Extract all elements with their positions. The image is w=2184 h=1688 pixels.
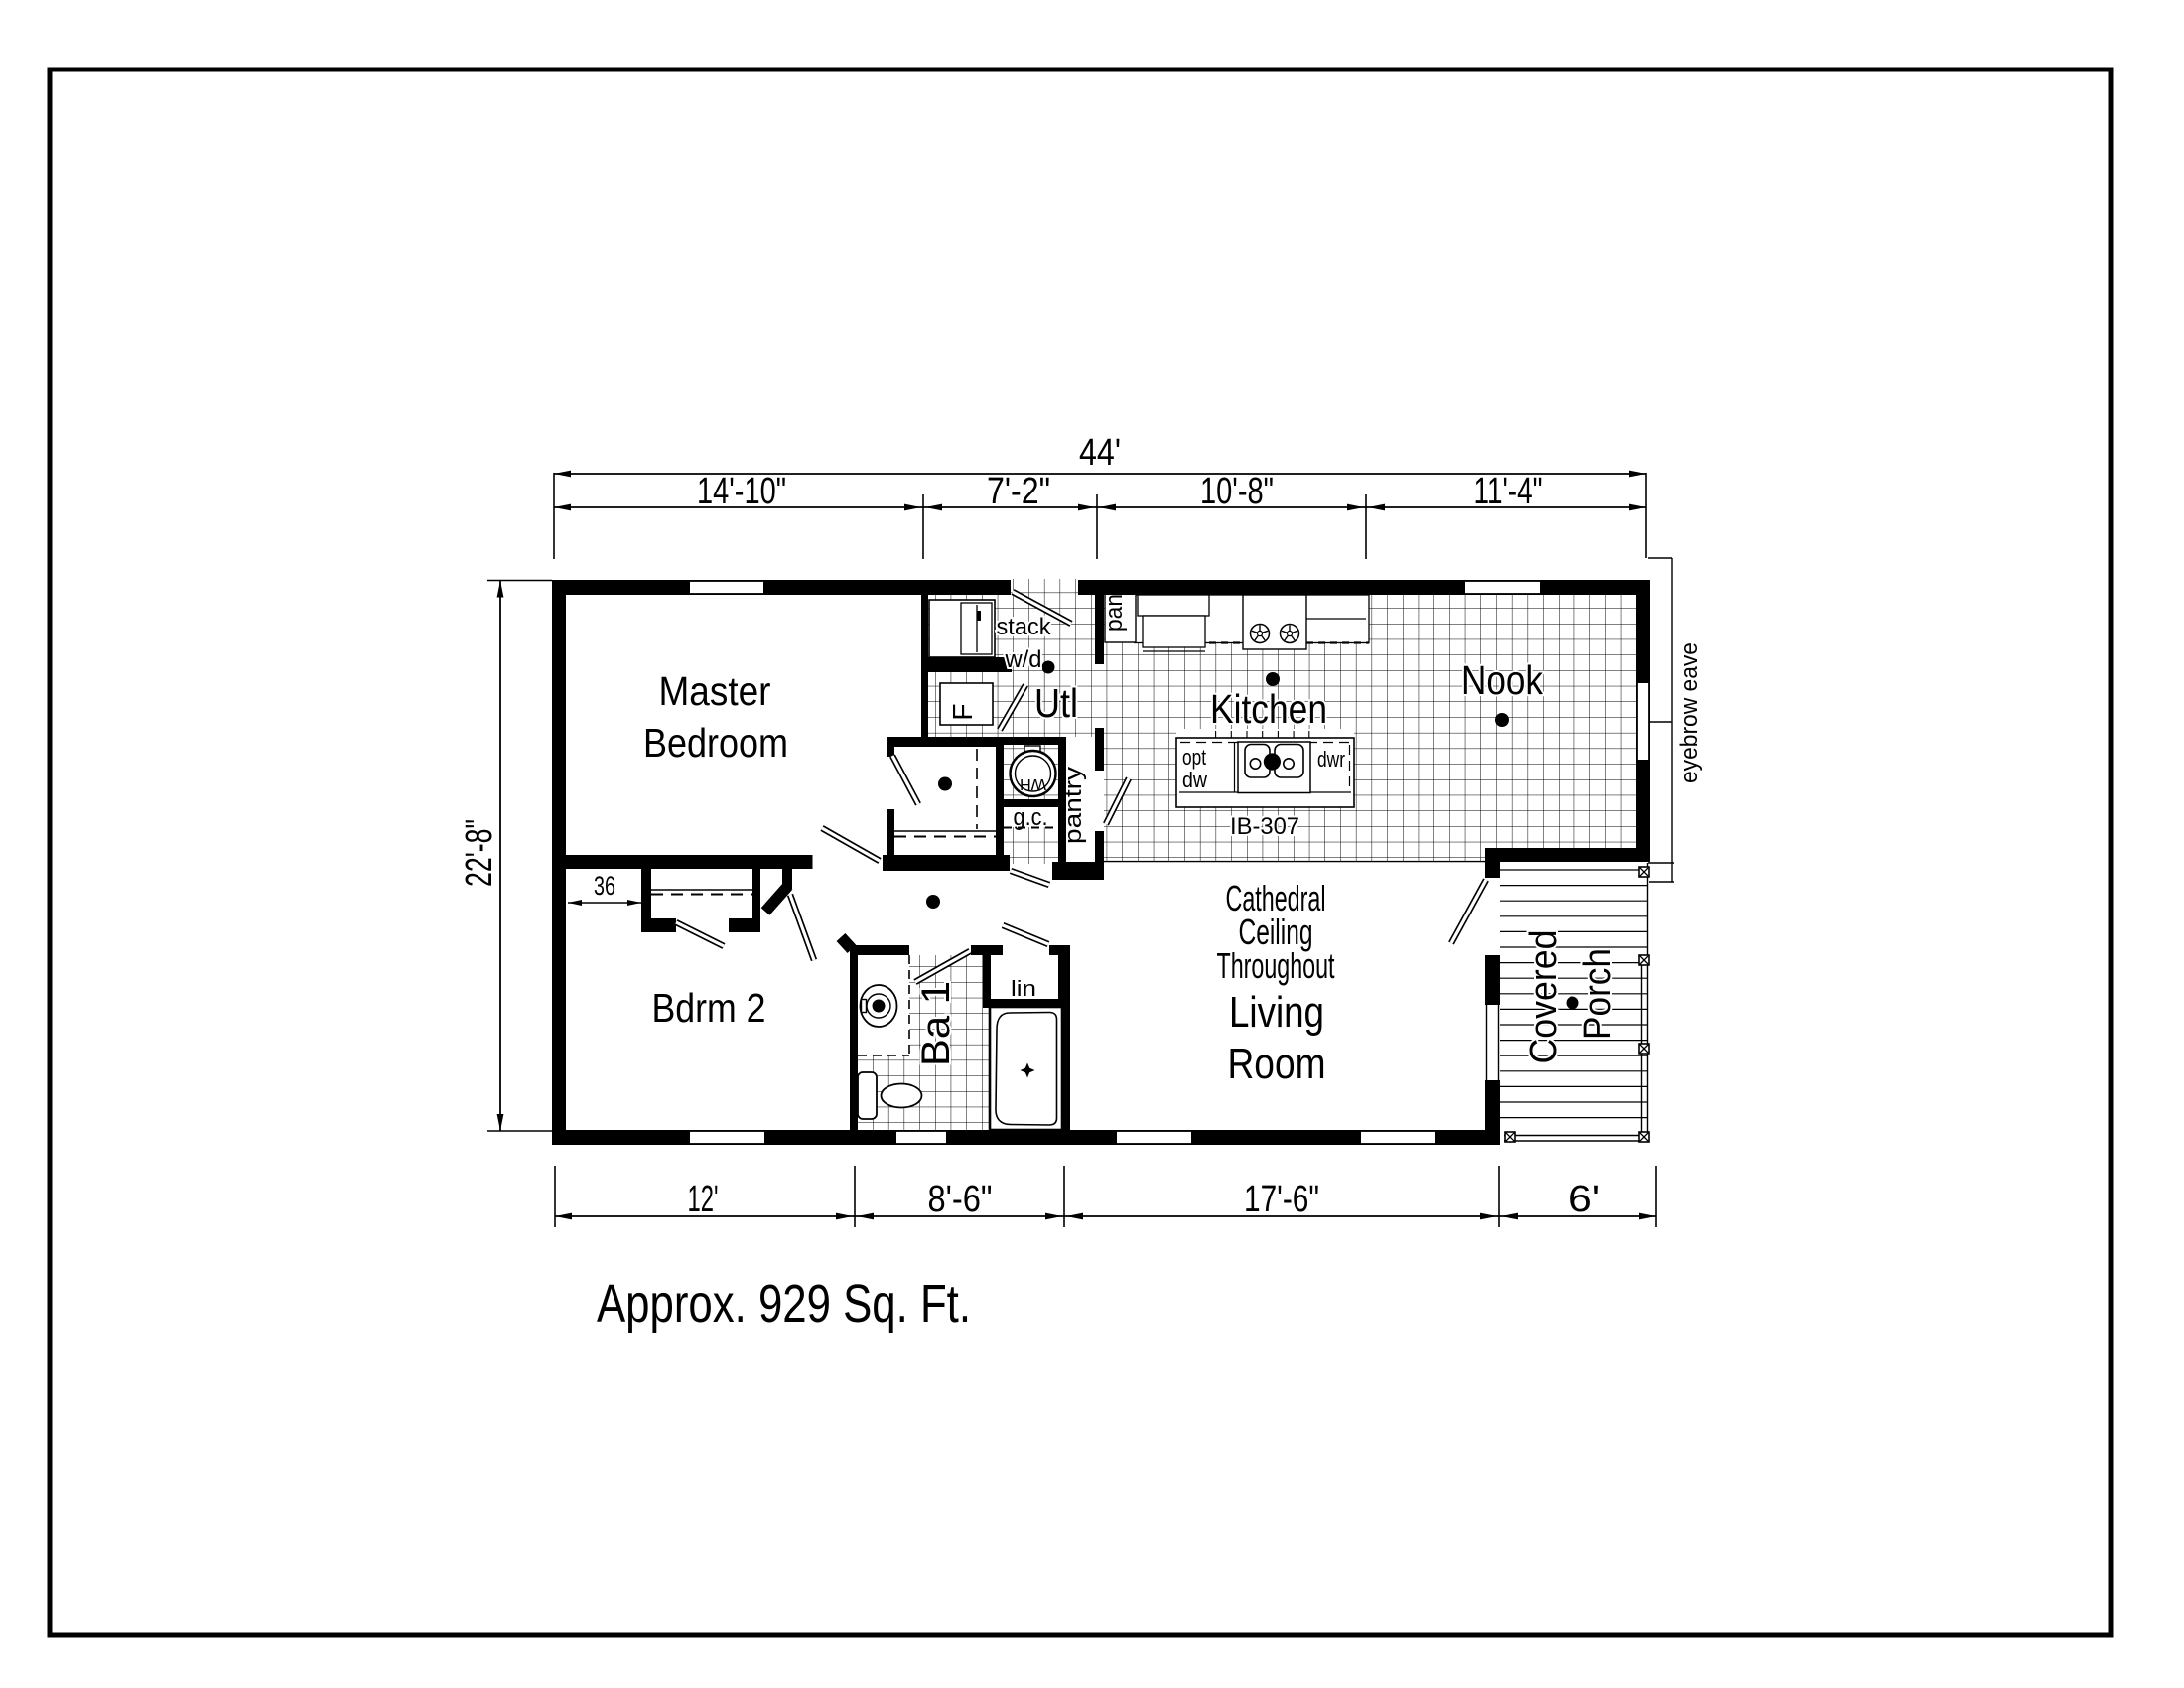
svg-text:Nook: Nook xyxy=(1461,657,1543,703)
svg-text:Kitchen: Kitchen xyxy=(1210,686,1327,732)
svg-text:WH: WH xyxy=(1020,775,1046,792)
svg-text:lin: lin xyxy=(1011,976,1036,1001)
svg-text:opt: opt xyxy=(1182,745,1206,770)
svg-text:dw: dw xyxy=(1182,768,1207,792)
svg-text:Ba 1: Ba 1 xyxy=(914,981,958,1066)
svg-text:17'-6": 17'-6" xyxy=(1244,1179,1319,1220)
svg-text:w/d: w/d xyxy=(1005,646,1042,673)
svg-text:14'-10": 14'-10" xyxy=(697,471,786,512)
svg-text:Bdrm 2: Bdrm 2 xyxy=(652,985,766,1031)
svg-text:8'-6": 8'-6" xyxy=(928,1179,993,1220)
svg-text:12': 12' xyxy=(688,1179,719,1220)
svg-text:Master: Master xyxy=(659,668,771,714)
svg-text:Utl: Utl xyxy=(1034,680,1078,726)
svg-text:pan: pan xyxy=(1101,594,1128,632)
svg-text:IB-307: IB-307 xyxy=(1230,813,1299,840)
svg-text:dwr: dwr xyxy=(1317,747,1345,772)
svg-text:10'-8": 10'-8" xyxy=(1200,471,1274,512)
svg-text:F: F xyxy=(947,703,978,720)
svg-text:36: 36 xyxy=(594,871,615,901)
svg-text:Covered: Covered xyxy=(1523,930,1565,1064)
svg-text:g.c.: g.c. xyxy=(1014,804,1048,831)
svg-text:Bedroom: Bedroom xyxy=(643,720,788,766)
svg-text:eyebrow eave: eyebrow eave xyxy=(1676,642,1703,783)
svg-text:Porch: Porch xyxy=(1577,948,1619,1040)
svg-text:7'-2": 7'-2" xyxy=(987,471,1050,512)
svg-text:11'-4": 11'-4" xyxy=(1474,471,1543,512)
svg-text:Room: Room xyxy=(1228,1040,1326,1088)
svg-text:pantry: pantry xyxy=(1060,767,1087,844)
svg-text:22'-8": 22'-8" xyxy=(459,819,500,887)
svg-text:Living: Living xyxy=(1229,988,1324,1037)
svg-text:stack: stack xyxy=(997,614,1052,640)
svg-text:6': 6' xyxy=(1569,1179,1600,1220)
svg-text:44': 44' xyxy=(1079,432,1121,474)
svg-text:Approx. 929 Sq. Ft.: Approx. 929 Sq. Ft. xyxy=(597,1274,971,1334)
svg-text:Throughout: Throughout xyxy=(1217,945,1335,986)
